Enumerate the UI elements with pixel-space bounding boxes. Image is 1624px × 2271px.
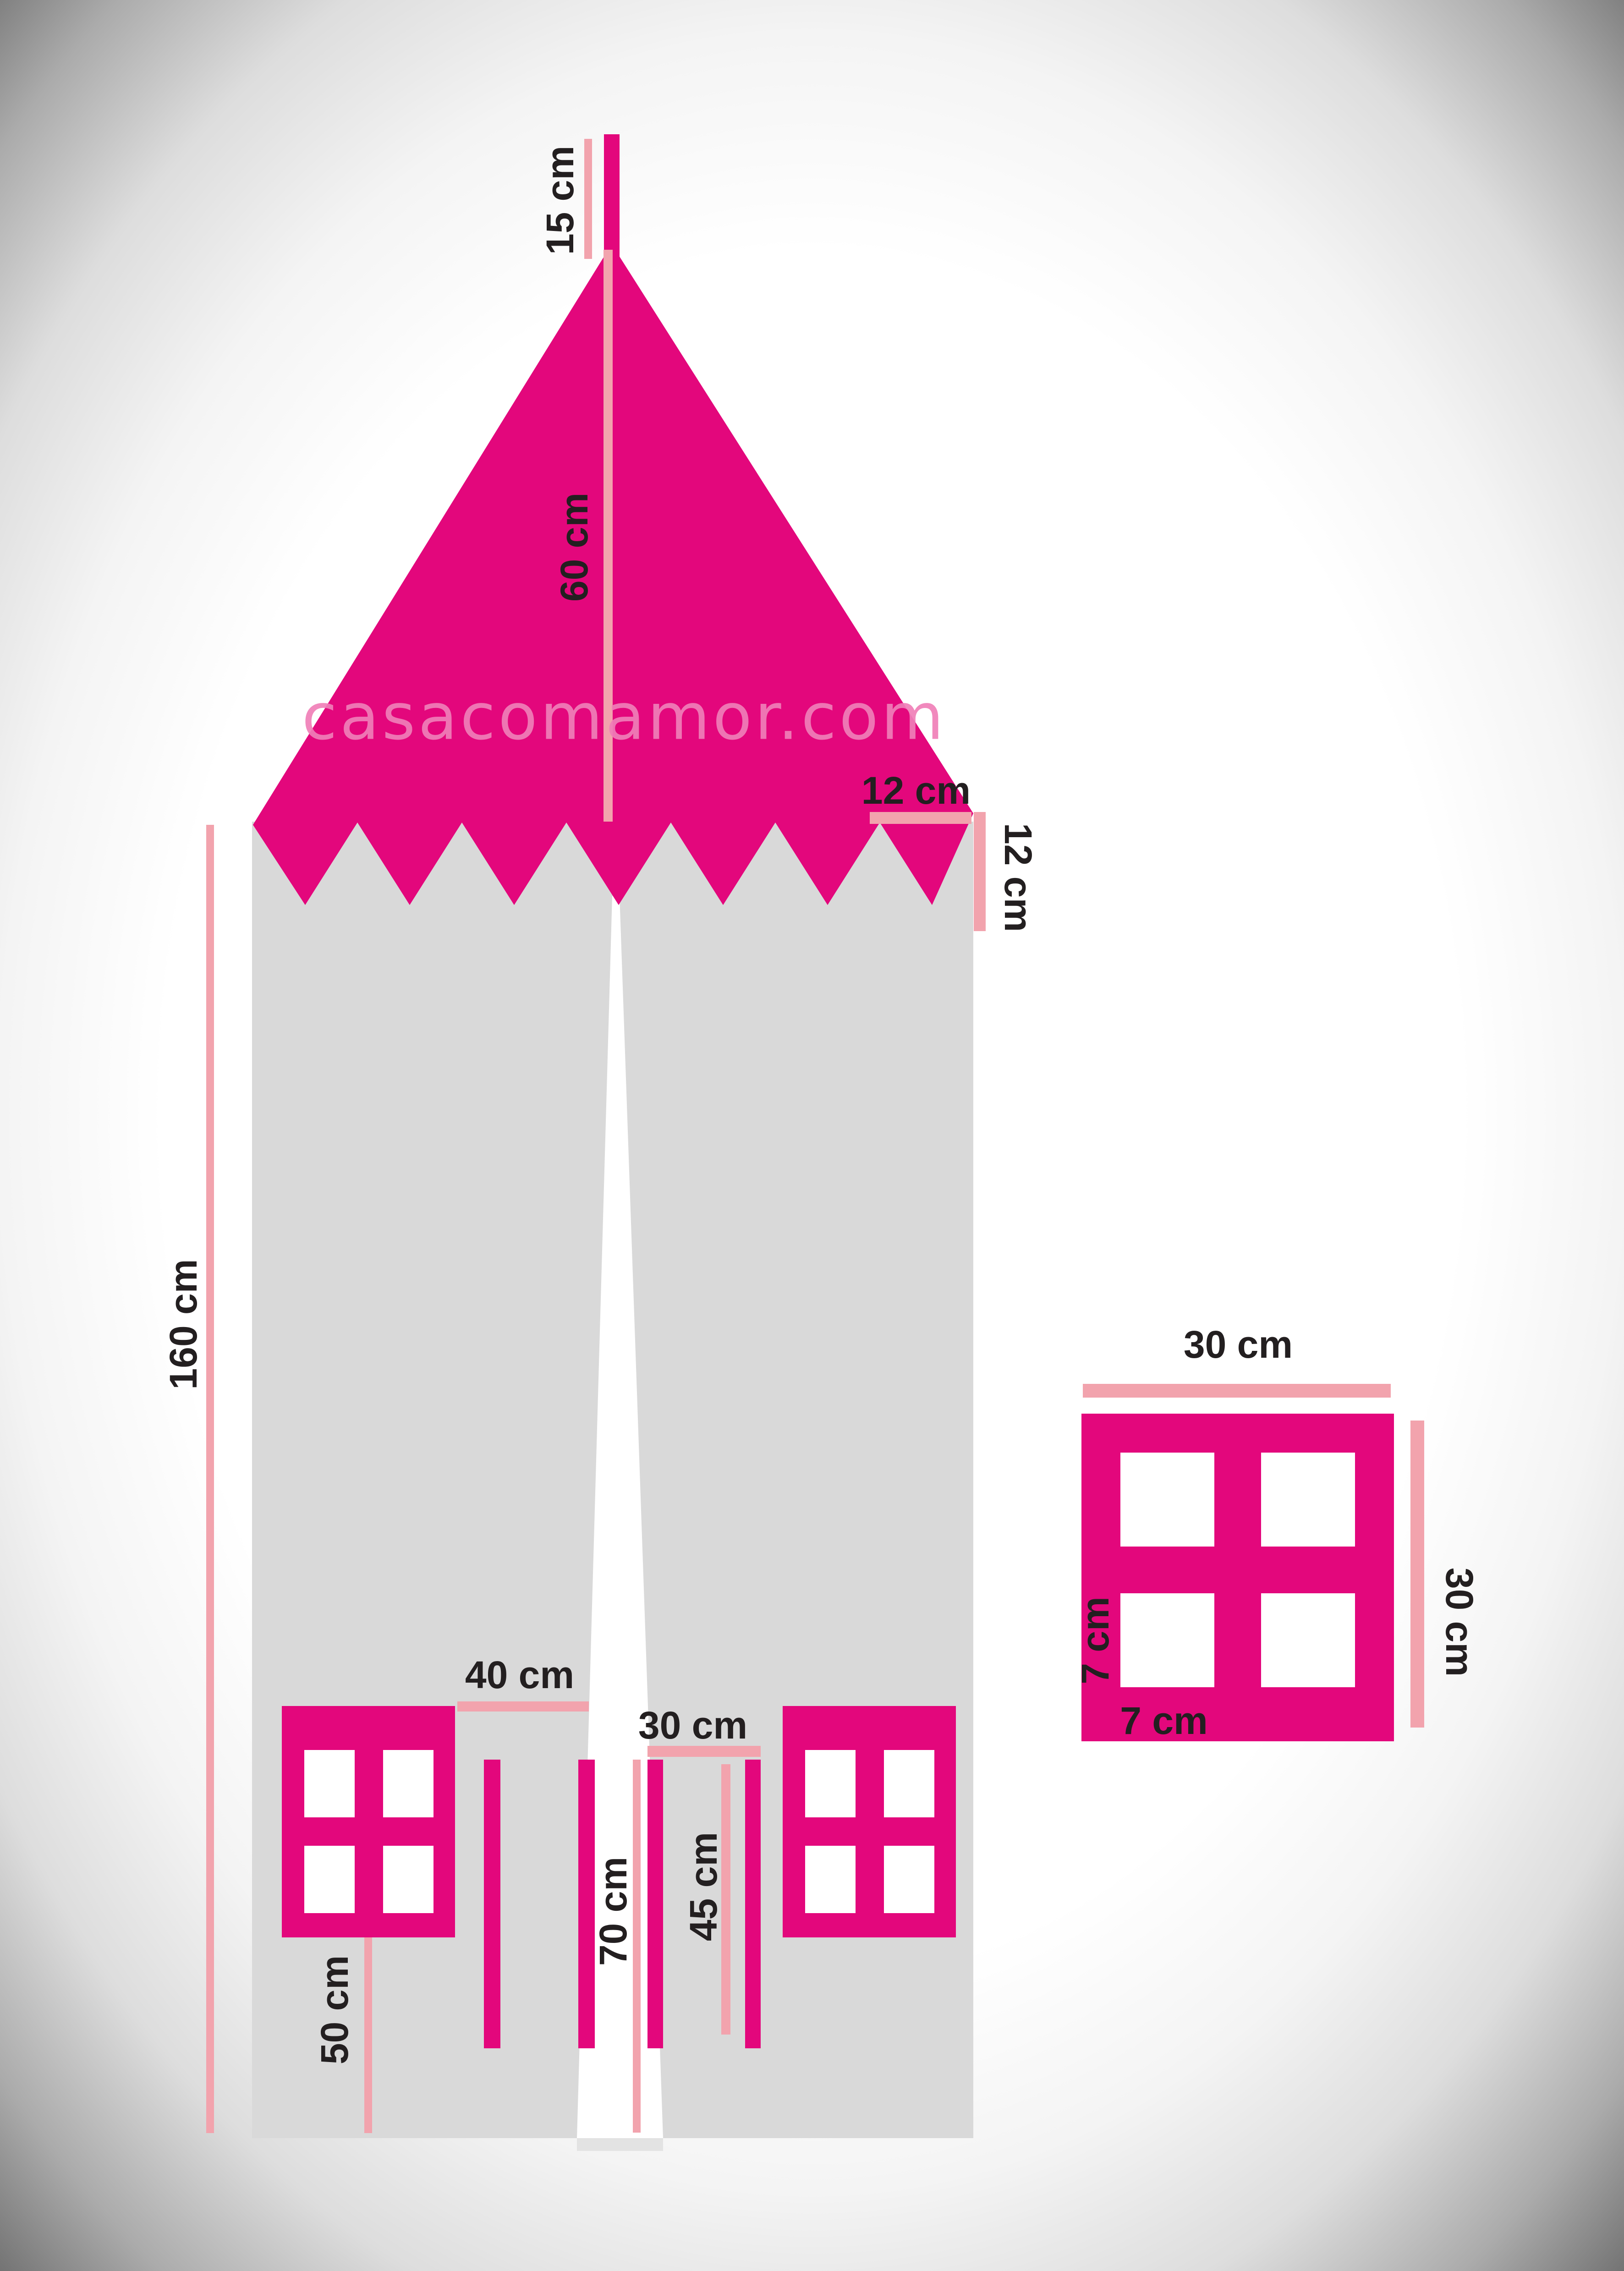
left-window <box>282 1706 455 1937</box>
right-window-pane-bottom-right <box>884 1846 934 1913</box>
label-window-gap: 40 cm <box>465 1656 574 1694</box>
label-roof-height: 60 cm <box>555 493 593 602</box>
left-window-pane-bottom-right <box>383 1846 433 1913</box>
door-tie-strip-right-edge <box>647 1760 663 2048</box>
label-tie-length: 45 cm <box>684 1832 723 1941</box>
window-drop-line <box>364 1937 372 2133</box>
label-scallop-width: 12 cm <box>861 771 971 810</box>
right-window-pane-top-right <box>884 1750 934 1817</box>
label-door-height: 70 cm <box>594 1857 632 1966</box>
label-body-height: 160 cm <box>164 1259 203 1390</box>
door-slit-tab <box>577 2138 663 2151</box>
watermark-text: casacomamor.com <box>302 680 947 755</box>
patch-pane-bottom-left <box>1120 1593 1214 1687</box>
right-window <box>783 1706 956 1937</box>
window-patch <box>1081 1414 1394 1741</box>
right-window-pane-top-left <box>805 1750 856 1817</box>
label-door-width: 30 cm <box>638 1706 747 1744</box>
label-pane-width: 7 cm <box>1120 1701 1207 1740</box>
patch-pane-top-left <box>1120 1453 1214 1547</box>
scallop-height-bar <box>974 812 986 931</box>
left-window-pane-top-right <box>383 1750 433 1817</box>
scallop-width-bar <box>870 812 971 824</box>
patch-width-bar <box>1083 1384 1391 1398</box>
patch-pane-bottom-right <box>1261 1593 1355 1687</box>
label-patch-width: 30 cm <box>1184 1325 1293 1364</box>
window-gap-bar <box>457 1701 589 1711</box>
door-width-bar <box>647 1746 761 1757</box>
left-window-pane-bottom-left <box>304 1846 355 1913</box>
patch-pane-top-right <box>1261 1453 1355 1547</box>
label-window-drop: 50 cm <box>315 1955 354 2064</box>
label-pole-height: 15 cm <box>541 146 579 255</box>
patch-height-bar <box>1410 1421 1424 1728</box>
right-window-pane-bottom-left <box>805 1846 856 1913</box>
door-tie-strip-outer-right <box>745 1760 761 2048</box>
body-height-line <box>206 825 214 2133</box>
door-tie-strip-outer-left <box>484 1760 500 2048</box>
label-scallop-height: 12 cm <box>999 823 1037 932</box>
pattern-diagram: 15 cm 60 cm 12 cm 12 cm 160 cm 30 cm 30 … <box>0 0 1624 2271</box>
label-pane-height: 7 cm <box>1076 1596 1114 1684</box>
label-patch-height: 30 cm <box>1440 1568 1479 1677</box>
left-window-pane-top-left <box>304 1750 355 1817</box>
hanging-loop <box>604 134 620 263</box>
pole-height-line <box>584 139 592 259</box>
